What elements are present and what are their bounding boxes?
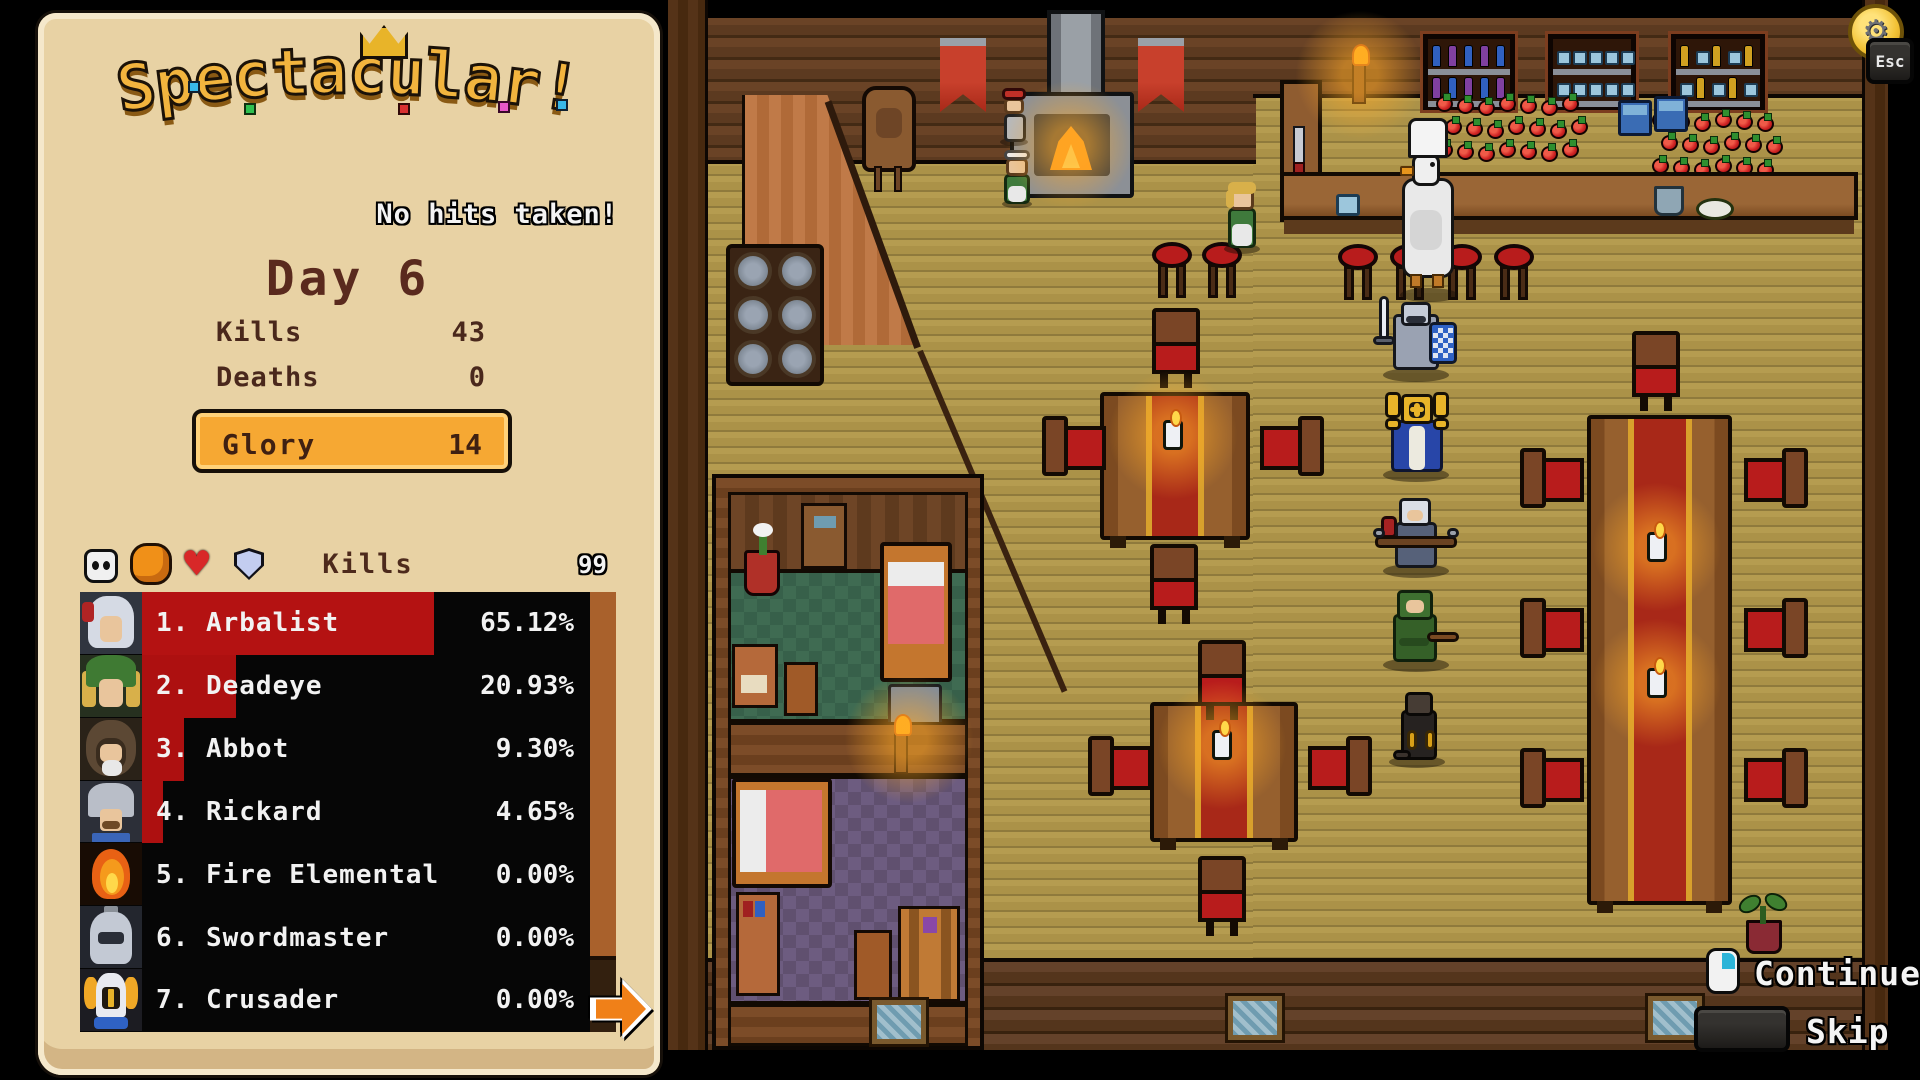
chair: [1742, 748, 1808, 812]
apple-icon: [1457, 98, 1474, 114]
avatar-deadeye: [80, 655, 142, 717]
knife-handle: [1293, 162, 1305, 174]
bar-stool: [1338, 244, 1378, 306]
chair: [1198, 856, 1246, 940]
patron: [996, 88, 1032, 148]
knife-icon: [1293, 126, 1305, 164]
leaderboard-percent: 65.12%: [480, 608, 574, 638]
bar-stool: [1152, 242, 1192, 304]
roomA-dresser: [732, 644, 778, 708]
candle-icon: [1212, 730, 1232, 760]
spacebar-icon: [1694, 1006, 1790, 1052]
glory-box: Glory 14: [192, 409, 512, 473]
chair: [1520, 448, 1586, 512]
leaderboard-row: 5. Fire Elemental0.00%: [80, 843, 590, 906]
roomA-crate: [784, 662, 818, 716]
barrel-icon: [778, 252, 816, 290]
heart-icon[interactable]: ♥: [184, 547, 218, 581]
guest-rooms: [712, 474, 984, 1050]
chair: [1742, 598, 1808, 662]
bucket-icon: [1654, 186, 1684, 216]
stat-row: Deaths0: [216, 362, 486, 407]
avatar-rickard: [80, 781, 142, 843]
roomA-door: [801, 503, 847, 569]
apple-icon: [1466, 121, 1483, 137]
wall-right-strip: [1862, 0, 1888, 1052]
chair: [1632, 331, 1680, 415]
avatar-arbalist: [80, 592, 142, 654]
barrel-icon: [734, 252, 772, 290]
apple-icon: [1571, 119, 1588, 135]
barrel-icon: [778, 340, 816, 378]
innkeeper-goose: [1394, 118, 1464, 303]
game-screen: Spectacular! No hits taken! Day 6 Kills4…: [0, 0, 1920, 1080]
hero-deadeye: [1373, 586, 1461, 670]
continue-button[interactable]: Continue: [1706, 946, 1916, 1000]
candle-icon: [1163, 420, 1183, 450]
scale-max: 99: [578, 551, 607, 579]
leaderboard-name: 1. Arbalist: [156, 608, 339, 638]
fireplace-chimney: [1047, 10, 1105, 96]
leaderboard-row: 3. Abbot9.30%: [80, 718, 590, 781]
leaderboard-percent: 20.93%: [480, 671, 574, 701]
stat-tabs: ♥ Kills 99: [38, 543, 660, 589]
continue-label: Continue: [1754, 954, 1920, 993]
waitress: [1220, 180, 1264, 254]
chair: [1306, 736, 1372, 800]
chair: [1742, 448, 1808, 512]
roomA-bed: [880, 542, 952, 682]
stat-label: Deaths: [216, 362, 320, 393]
wall-shelf: [1548, 34, 1636, 110]
apple-icon: [1682, 137, 1699, 153]
ceiling-shadow: [668, 0, 1888, 18]
leaderboard-percent: 0.00%: [496, 860, 574, 890]
leaderboard-row: 7. Crusader0.00%: [80, 969, 590, 1032]
apple-icon: [1661, 135, 1678, 151]
kills-leaderboard: 1. Arbalist65.12%2. Deadeye20.93%3. Abbo…: [80, 592, 590, 1032]
hero-swordmaster: [1373, 296, 1461, 380]
wall-left-strip: [668, 0, 708, 1052]
leaderboard-row: 1. Arbalist65.12%: [80, 592, 590, 655]
esc-key-label: Esc: [1876, 52, 1905, 71]
apple-icon: [1562, 96, 1579, 112]
leaderboard-percent: 9.30%: [496, 734, 574, 764]
day-label: Day 6: [148, 251, 548, 307]
glory-value: 14: [448, 428, 482, 461]
apple-icon: [1703, 139, 1720, 155]
skip-button[interactable]: Skip: [1694, 1002, 1914, 1058]
roomB-crate: [854, 930, 892, 1000]
apple-icon: [1745, 137, 1762, 153]
apple-icon: [1529, 121, 1546, 137]
apple-icon: [1508, 119, 1525, 135]
stat-value: 43: [451, 317, 486, 348]
fist-icon[interactable]: [130, 543, 172, 585]
wall-torch-icon: [1352, 60, 1366, 104]
hero-crusader: [1373, 390, 1461, 480]
plate-icon: [1696, 198, 1734, 220]
leaderboard-row: 6. Swordmaster0.00%: [80, 906, 590, 969]
leaderboard-name: 3. Abbot: [156, 734, 289, 764]
leaderboard-name: 5. Fire Elemental: [156, 860, 439, 890]
window: [1228, 996, 1282, 1040]
chair: [1088, 736, 1154, 800]
roomB-chest: [898, 906, 960, 1002]
apple-icon: [1436, 96, 1453, 112]
avatar-abbot: [80, 718, 142, 780]
avatar-swordmaster: [80, 906, 142, 968]
apple-icon: [1499, 142, 1516, 158]
stat-value: 0: [469, 362, 486, 393]
logo: Spectacular!: [68, 51, 628, 171]
chair: [1520, 748, 1586, 812]
barrel-icon: [778, 296, 816, 334]
scrollbar[interactable]: [590, 592, 616, 1032]
mug-icon: [1336, 194, 1360, 216]
metric-label: Kills: [288, 549, 448, 580]
roomB-bookshelf: [736, 892, 780, 996]
roomB-bed: [732, 778, 832, 888]
chair: [1150, 544, 1198, 628]
leaderboard-percent: 0.00%: [496, 985, 574, 1015]
avatar-crusader: [80, 969, 142, 1031]
barrel-icon: [734, 340, 772, 378]
chair: [1258, 416, 1324, 480]
candle-icon: [1647, 532, 1667, 562]
apple-icon: [1694, 116, 1711, 132]
hero-assassin: [1377, 688, 1461, 768]
crate-blue-icon: [1654, 96, 1688, 132]
candle-icon: [1647, 668, 1667, 698]
leaderboard-percent: 4.65%: [496, 797, 574, 827]
hero-arbalist: [1373, 494, 1461, 576]
leaderboard-name: 2. Deadeye: [156, 671, 323, 701]
chair: [1520, 598, 1586, 662]
bar-counter-face: [1284, 220, 1854, 234]
apple-icon: [1562, 142, 1579, 158]
barrel-icon: [734, 296, 772, 334]
chair: [1042, 416, 1108, 480]
flower-pot-icon: [744, 550, 780, 596]
subtitle: No hits taken!: [278, 199, 618, 230]
bar-stool: [1494, 244, 1534, 306]
chair: [1152, 308, 1200, 392]
settings-button[interactable]: ⚙ Esc: [1846, 2, 1916, 86]
apple-icon: [1478, 100, 1495, 116]
leaderboard-name: 4. Rickard: [156, 797, 323, 827]
leaderboard-percent: 0.00%: [496, 923, 574, 953]
room-torch-icon: [894, 730, 908, 774]
leaderboard-name: 6. Swordmaster: [156, 923, 389, 953]
mouse-icon: [1706, 948, 1740, 994]
apple-icon: [1541, 146, 1558, 162]
apple-icon: [1724, 135, 1741, 151]
apple-icon: [1499, 96, 1516, 112]
leaderboard-row: 4. Rickard4.65%: [80, 781, 590, 844]
chef-hat-icon: [1408, 118, 1448, 158]
crown-icon: [360, 25, 408, 59]
leaderboard-row: 2. Deadeye20.93%: [80, 655, 590, 718]
esc-key: Esc: [1866, 38, 1914, 84]
apple-icon: [1478, 146, 1495, 162]
apple-icon: [1757, 116, 1774, 132]
chair: [1198, 640, 1246, 724]
room-divider: [728, 722, 968, 776]
leaderboard-name: 7. Crusader: [156, 985, 339, 1015]
apple-icon: [1550, 123, 1567, 139]
roomB-bottom-wall: [728, 1004, 968, 1046]
apple-icon: [1487, 123, 1504, 139]
bar-counter: [1280, 172, 1858, 220]
skull-icon[interactable]: [84, 549, 118, 583]
apple-icon: [1736, 114, 1753, 130]
arrow-right-icon[interactable]: [590, 973, 652, 1045]
mounted-trophy: [862, 86, 916, 172]
avatar-fire-elemental: [80, 843, 142, 905]
apple-icon: [1541, 100, 1558, 116]
stat-row: Kills43: [216, 317, 486, 362]
stat-label: Kills: [216, 317, 302, 348]
crate-blue-icon: [1618, 100, 1652, 136]
day-summary-panel: Spectacular! No hits taken! Day 6 Kills4…: [38, 13, 660, 1075]
shield-icon[interactable]: [234, 548, 264, 580]
apple-icon: [1520, 144, 1537, 160]
skip-label: Skip: [1806, 1012, 1889, 1051]
apple-icon: [1715, 112, 1732, 128]
glory-label: Glory: [222, 428, 316, 461]
patron: [998, 148, 1036, 210]
window: [872, 1000, 926, 1044]
apple-icon: [1766, 139, 1783, 155]
scrollbar-thumb[interactable]: [590, 592, 616, 960]
apple-icon: [1520, 98, 1537, 114]
